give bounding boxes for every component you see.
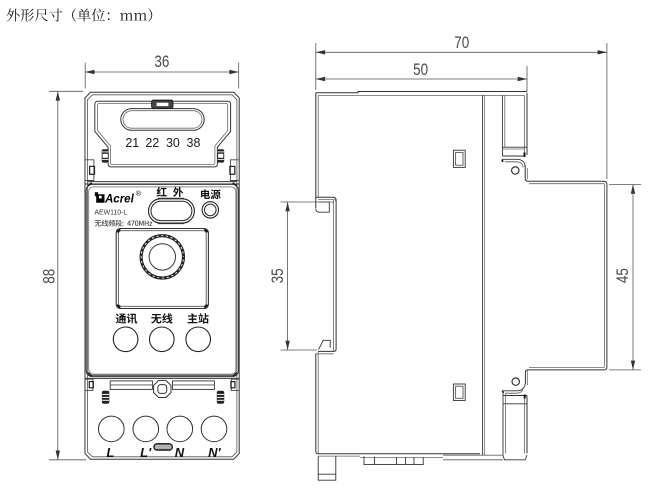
- svg-text:N: N: [175, 445, 185, 460]
- svg-text:50: 50: [413, 60, 428, 79]
- svg-text:38: 38: [187, 136, 201, 150]
- svg-text:21: 21: [125, 136, 139, 150]
- svg-text:36: 36: [154, 52, 169, 71]
- svg-text:70: 70: [454, 33, 469, 52]
- svg-text:AEW110-L: AEW110-L: [94, 208, 127, 217]
- svg-text:30: 30: [166, 136, 180, 150]
- svg-text:88: 88: [39, 269, 58, 284]
- svg-text:35: 35: [268, 268, 287, 283]
- svg-text:45: 45: [613, 268, 632, 283]
- svg-text:L: L: [106, 445, 114, 460]
- svg-text:N': N': [208, 445, 221, 460]
- svg-text:L': L': [140, 445, 152, 460]
- svg-text:Acrel: Acrel: [104, 194, 135, 206]
- svg-text:22: 22: [145, 136, 159, 150]
- svg-text:®: ®: [136, 190, 142, 198]
